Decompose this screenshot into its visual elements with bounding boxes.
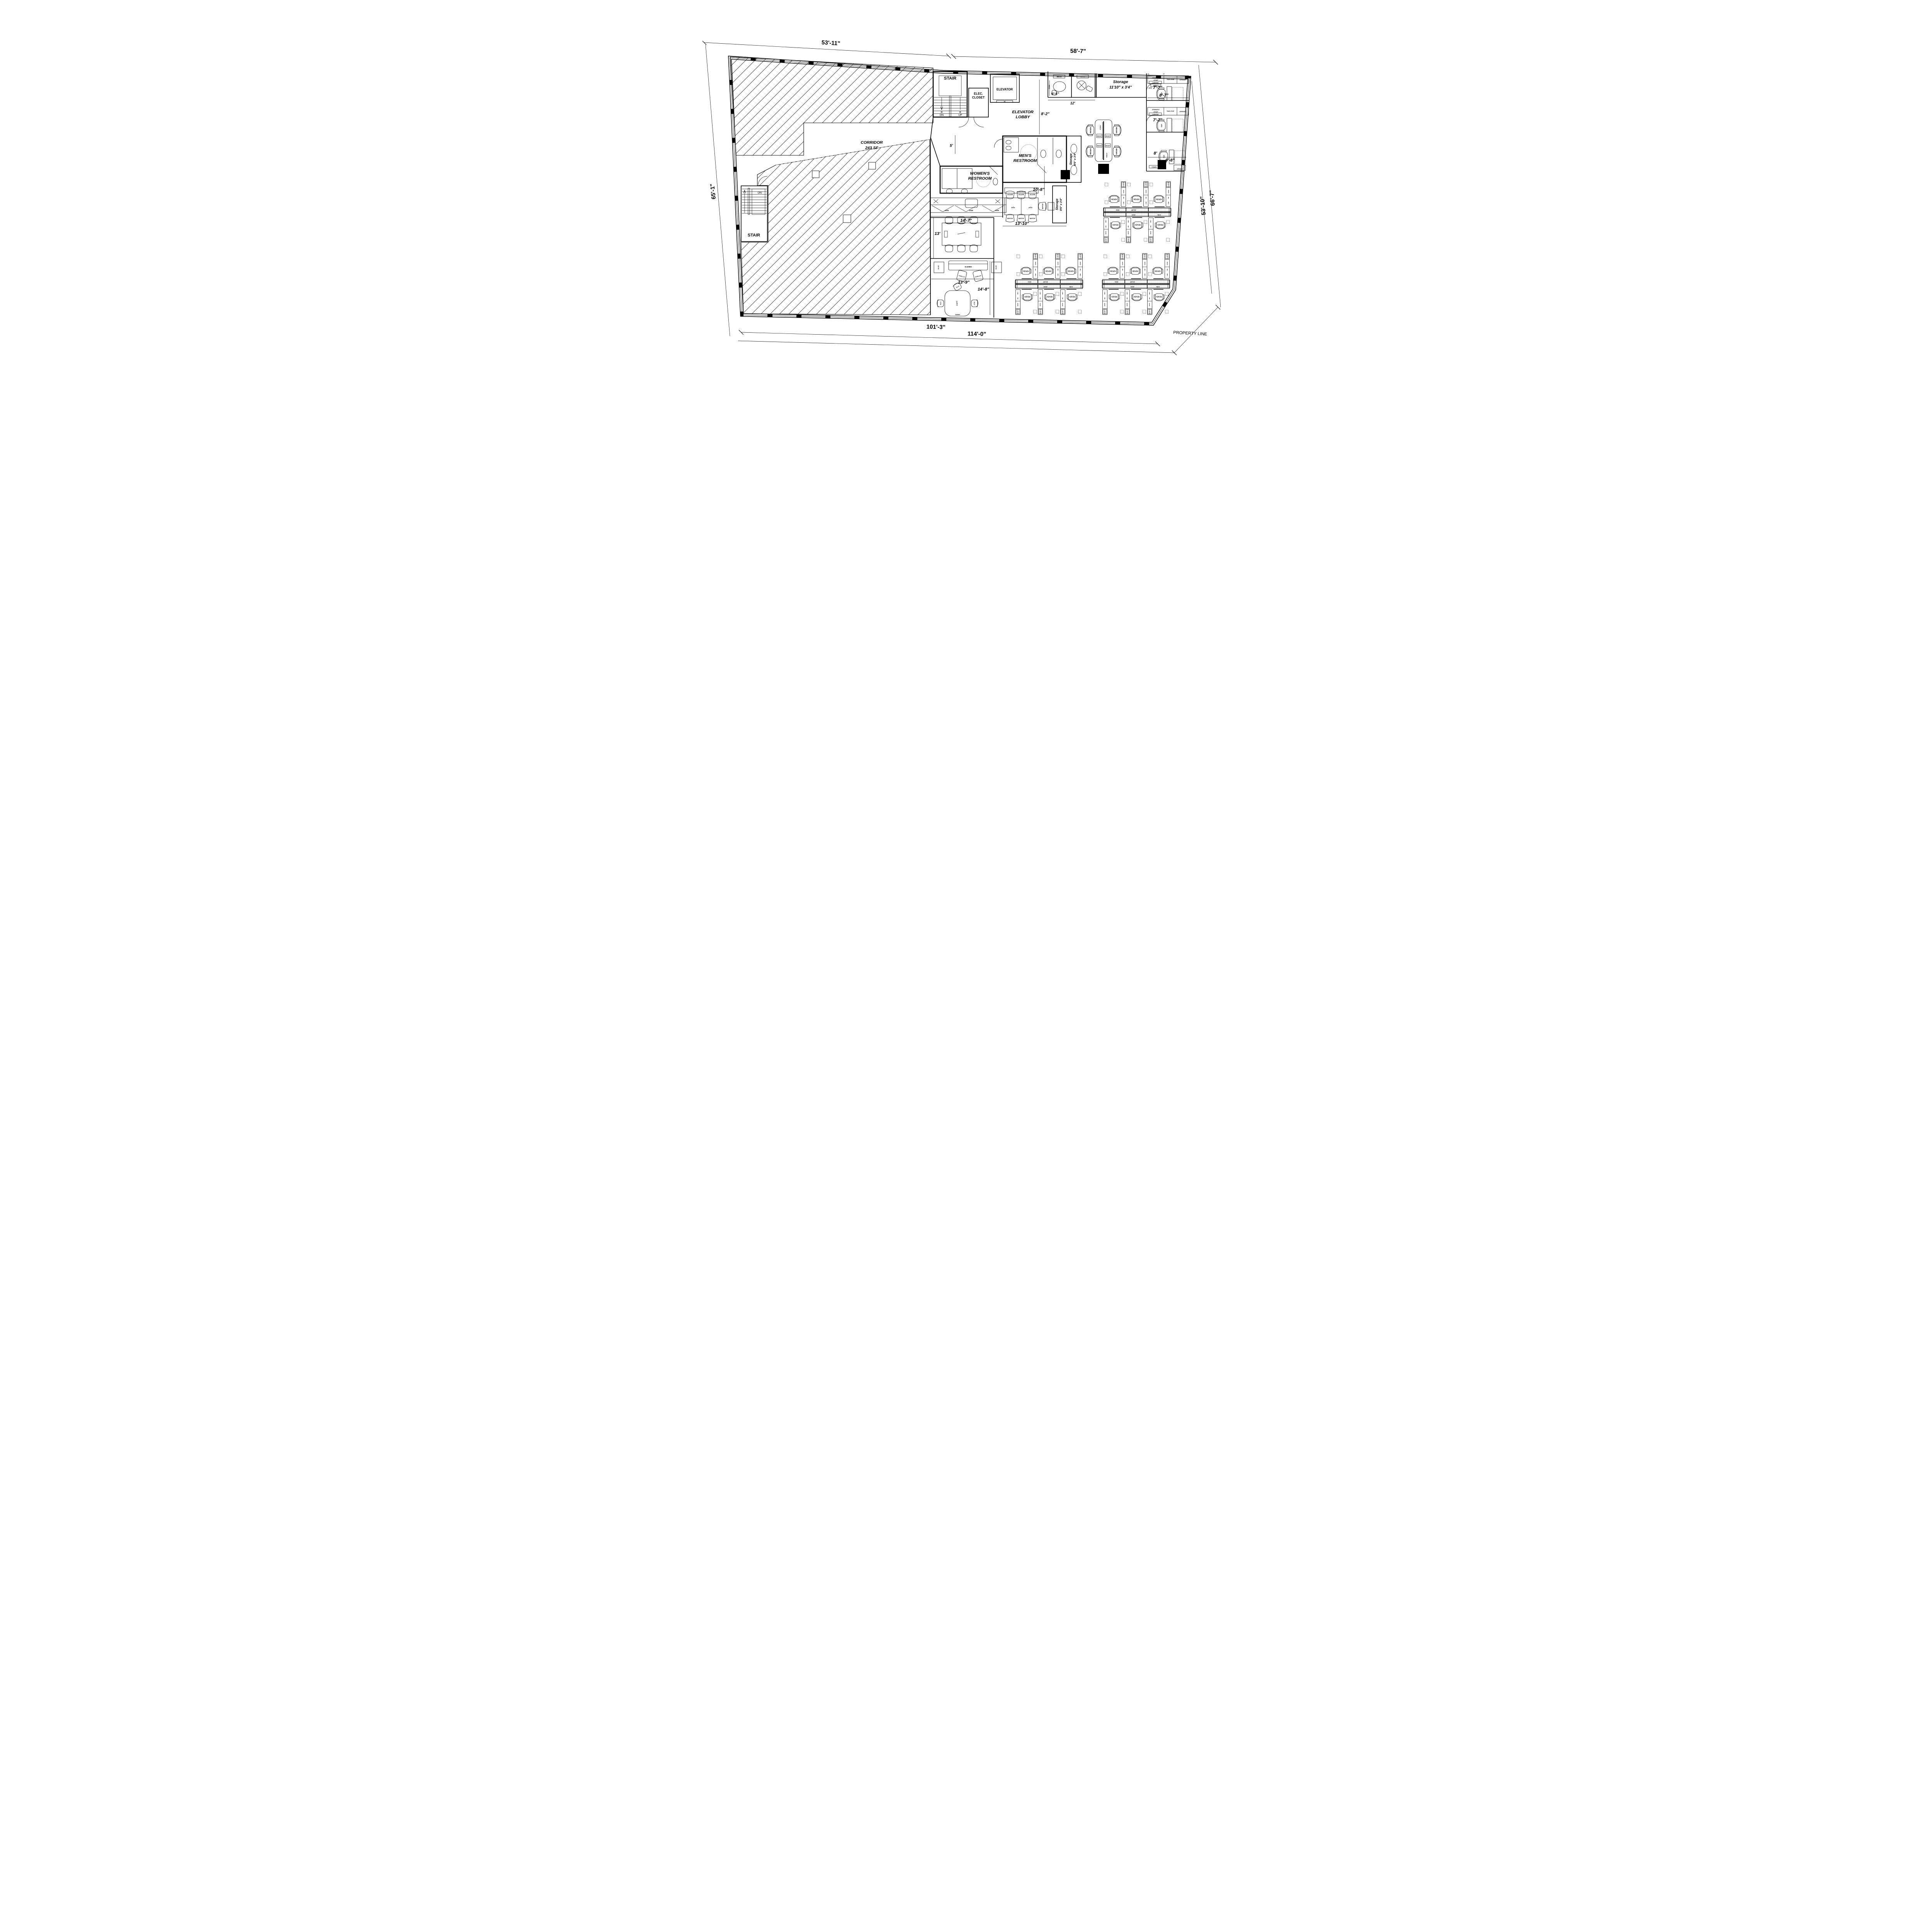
- rmc36-label-2: RMC36: [1080, 76, 1086, 78]
- storage-side-label: Storage: [1069, 153, 1073, 165]
- bench-cluster-bottom-left: [1015, 253, 1083, 315]
- wall-tag: FC: [1148, 73, 1150, 75]
- dim-right-outer: 66'-7": [1208, 190, 1216, 206]
- storage-side-size: 8'6" x 3'4": [1074, 153, 1077, 166]
- cab-label: OPEN30F: [1179, 79, 1186, 81]
- storage-top-room: Storage 11'10" x 3'4": [1109, 80, 1132, 90]
- column-void: [843, 215, 851, 223]
- storage-low-room: Storage 8'6" x 3'4": [1053, 186, 1066, 223]
- cab-label: SPW64/FO: [1152, 77, 1159, 79]
- monitor-arm-label: XYZKCL: [1106, 153, 1107, 158]
- sq42-label: SQ42: [1011, 207, 1015, 208]
- dim-8-2: 8'-2": [1041, 112, 1049, 116]
- cab-label: OPEN30F: [1179, 111, 1186, 112]
- office1-depth: 8'-7": [1159, 93, 1169, 98]
- office2-width: 7'-7": [1153, 118, 1163, 122]
- womens-restroom: WOMEN'S RESTROOM: [940, 166, 1003, 194]
- dim-10-8: 10'-8": [1033, 187, 1045, 192]
- cab-label: T8420 CF24F: [1167, 111, 1175, 112]
- dim-13-10: 13'-10": [1015, 221, 1029, 226]
- stair-top-label: STAIR: [944, 76, 956, 81]
- monitor-label: WEXBY: [1105, 136, 1111, 137]
- mens-label-2: RESTROOM: [1014, 158, 1037, 163]
- dim-13: 13': [935, 231, 940, 236]
- bench-pod-4: WEXBY WEXBY WEXBY WEXBY XYZKCL XYZKCL: [1086, 120, 1121, 162]
- floor-plan-canvas: REGEN BERTOIA OLLO GEN 2 LOCK CF30F T48 …: [676, 0, 1256, 386]
- office3-width: 8': [1154, 151, 1157, 156]
- monitor-label: WEXBY: [1097, 136, 1102, 137]
- sq42-label: SQ42: [1028, 207, 1032, 208]
- elec-closet-label-1: ELEC.: [974, 92, 983, 95]
- conference-room: 13': [930, 193, 1003, 318]
- womens-label-2: RESTROOM: [968, 176, 992, 181]
- column: [1098, 164, 1109, 174]
- storage-low-size: 8'6" x 3'4": [1060, 198, 1063, 211]
- elevator-label: ELEVATOR: [997, 88, 1013, 91]
- column: [1061, 170, 1070, 179]
- dim-bottom-inner: 101'-3": [926, 323, 946, 330]
- womens-label-1: WOMEN'S: [970, 171, 990, 176]
- storage-top-size: 11'10" x 3'4": [1109, 85, 1132, 90]
- dim-5ft: 5': [950, 144, 953, 148]
- dim-bottom-outer: 114'-0": [968, 330, 986, 337]
- cab-label: CF30F: [1153, 80, 1158, 81]
- mens-restroom: MEN'S RESTROOM: [1003, 136, 1066, 182]
- stair-dn-label: DN: [940, 114, 944, 117]
- base-cab-label: 36/BB: [945, 210, 949, 211]
- wall-tag: FT: [1163, 73, 1165, 75]
- elevator-lobby-label-2: LOBBY: [1016, 115, 1031, 119]
- corridor-label: CORRIDOR: [861, 140, 883, 145]
- bench-cluster-bottom-right: [1102, 253, 1170, 315]
- kitchen-counter: 36/BB 36/BB 36/BB 14'-7": [930, 198, 1006, 223]
- bench-cluster-right: [1104, 182, 1171, 243]
- stair-top-room: STAIR DN UP: [933, 71, 967, 117]
- dim-12: 12': [1070, 101, 1075, 105]
- storage-low-label: Storage: [1055, 199, 1059, 210]
- dim-6-5: 6'-5": [1051, 92, 1059, 96]
- cab-label: SPW64/FO: [1152, 109, 1159, 111]
- stair-up-label: UP: [958, 114, 962, 117]
- cab-label: 64/FD: [1149, 87, 1152, 89]
- elec-closet-label-2: CLOSET: [972, 96, 985, 99]
- dim-14-8: 14'-8": [978, 287, 990, 292]
- storage-top-label: Storage: [1113, 80, 1128, 84]
- elevator-lobby-label-1: ELEVATOR: [1012, 110, 1034, 114]
- office1-width: 7'-7": [1153, 85, 1163, 90]
- cab-label: T8420 CF24F: [1167, 79, 1175, 80]
- corridor-area-label: 243 SF: [865, 146, 878, 150]
- hatched-area-lower: [741, 139, 930, 315]
- stair-left-label: STAIR: [748, 233, 760, 238]
- monitor-label: WEXBY: [1097, 145, 1102, 147]
- elec-closet-room: ELEC. CLOSET: [969, 88, 988, 127]
- dim-right-inner: 53'-10": [1199, 196, 1207, 215]
- monitor-label: WEXBY: [1105, 145, 1111, 147]
- dim-13-9: 13'-9": [958, 280, 970, 285]
- column-void: [869, 162, 876, 169]
- cafe-area: SHEPP 6060S1 14'-8": [937, 261, 990, 316]
- easel-label: 50SLDLSK: [1045, 203, 1047, 209]
- dim-top-right: 58'-7": [1070, 48, 1086, 55]
- cab-label: OPEN30F: [1177, 168, 1183, 170]
- office3-depth: 9'-8": [1165, 158, 1175, 163]
- base-cab-label: 36/BB: [969, 210, 973, 211]
- sofa-label: KL6HBG: [965, 266, 972, 268]
- elevator-room: ELEVATOR: [990, 74, 1019, 102]
- cafe-table-label: 6060S1: [955, 314, 960, 315]
- rmc36-label-1: RMC36: [1057, 76, 1062, 78]
- dim-top-left: 53'-11": [821, 39, 840, 47]
- property-line-label: PROPERTY LINE: [1173, 330, 1207, 337]
- column-void: [812, 171, 819, 178]
- dim-left: 65'-1": [709, 183, 717, 199]
- cab-label: KSPEC3: [1151, 166, 1156, 168]
- side-table-label: KL10G: [938, 265, 939, 269]
- base-cab-label: 36/BB: [995, 210, 999, 211]
- monitor-arm-label: XYZKCL: [1100, 125, 1101, 131]
- column: [1158, 160, 1166, 169]
- cafe-center-label: SHEPP: [956, 301, 958, 306]
- stair-left-dn-label: DN: [758, 192, 762, 194]
- wall-diagonal: [930, 137, 940, 166]
- stair-left-room: DN STAIR: [741, 176, 767, 241]
- side-table-label: KL10G: [995, 265, 997, 269]
- mens-label-1: MEN'S: [1019, 153, 1032, 158]
- lounge-area: KL6HBG KL10G KL10G ACTTB2GL ACTTB2GL 13'…: [931, 261, 1002, 285]
- lounge-chair-label: ACTTB2GL: [958, 275, 965, 278]
- cab-label: CF30F: [1153, 111, 1158, 113]
- lounge-chair-label: ACTTB2GL: [975, 275, 981, 278]
- hatched-area-upper: [730, 57, 933, 155]
